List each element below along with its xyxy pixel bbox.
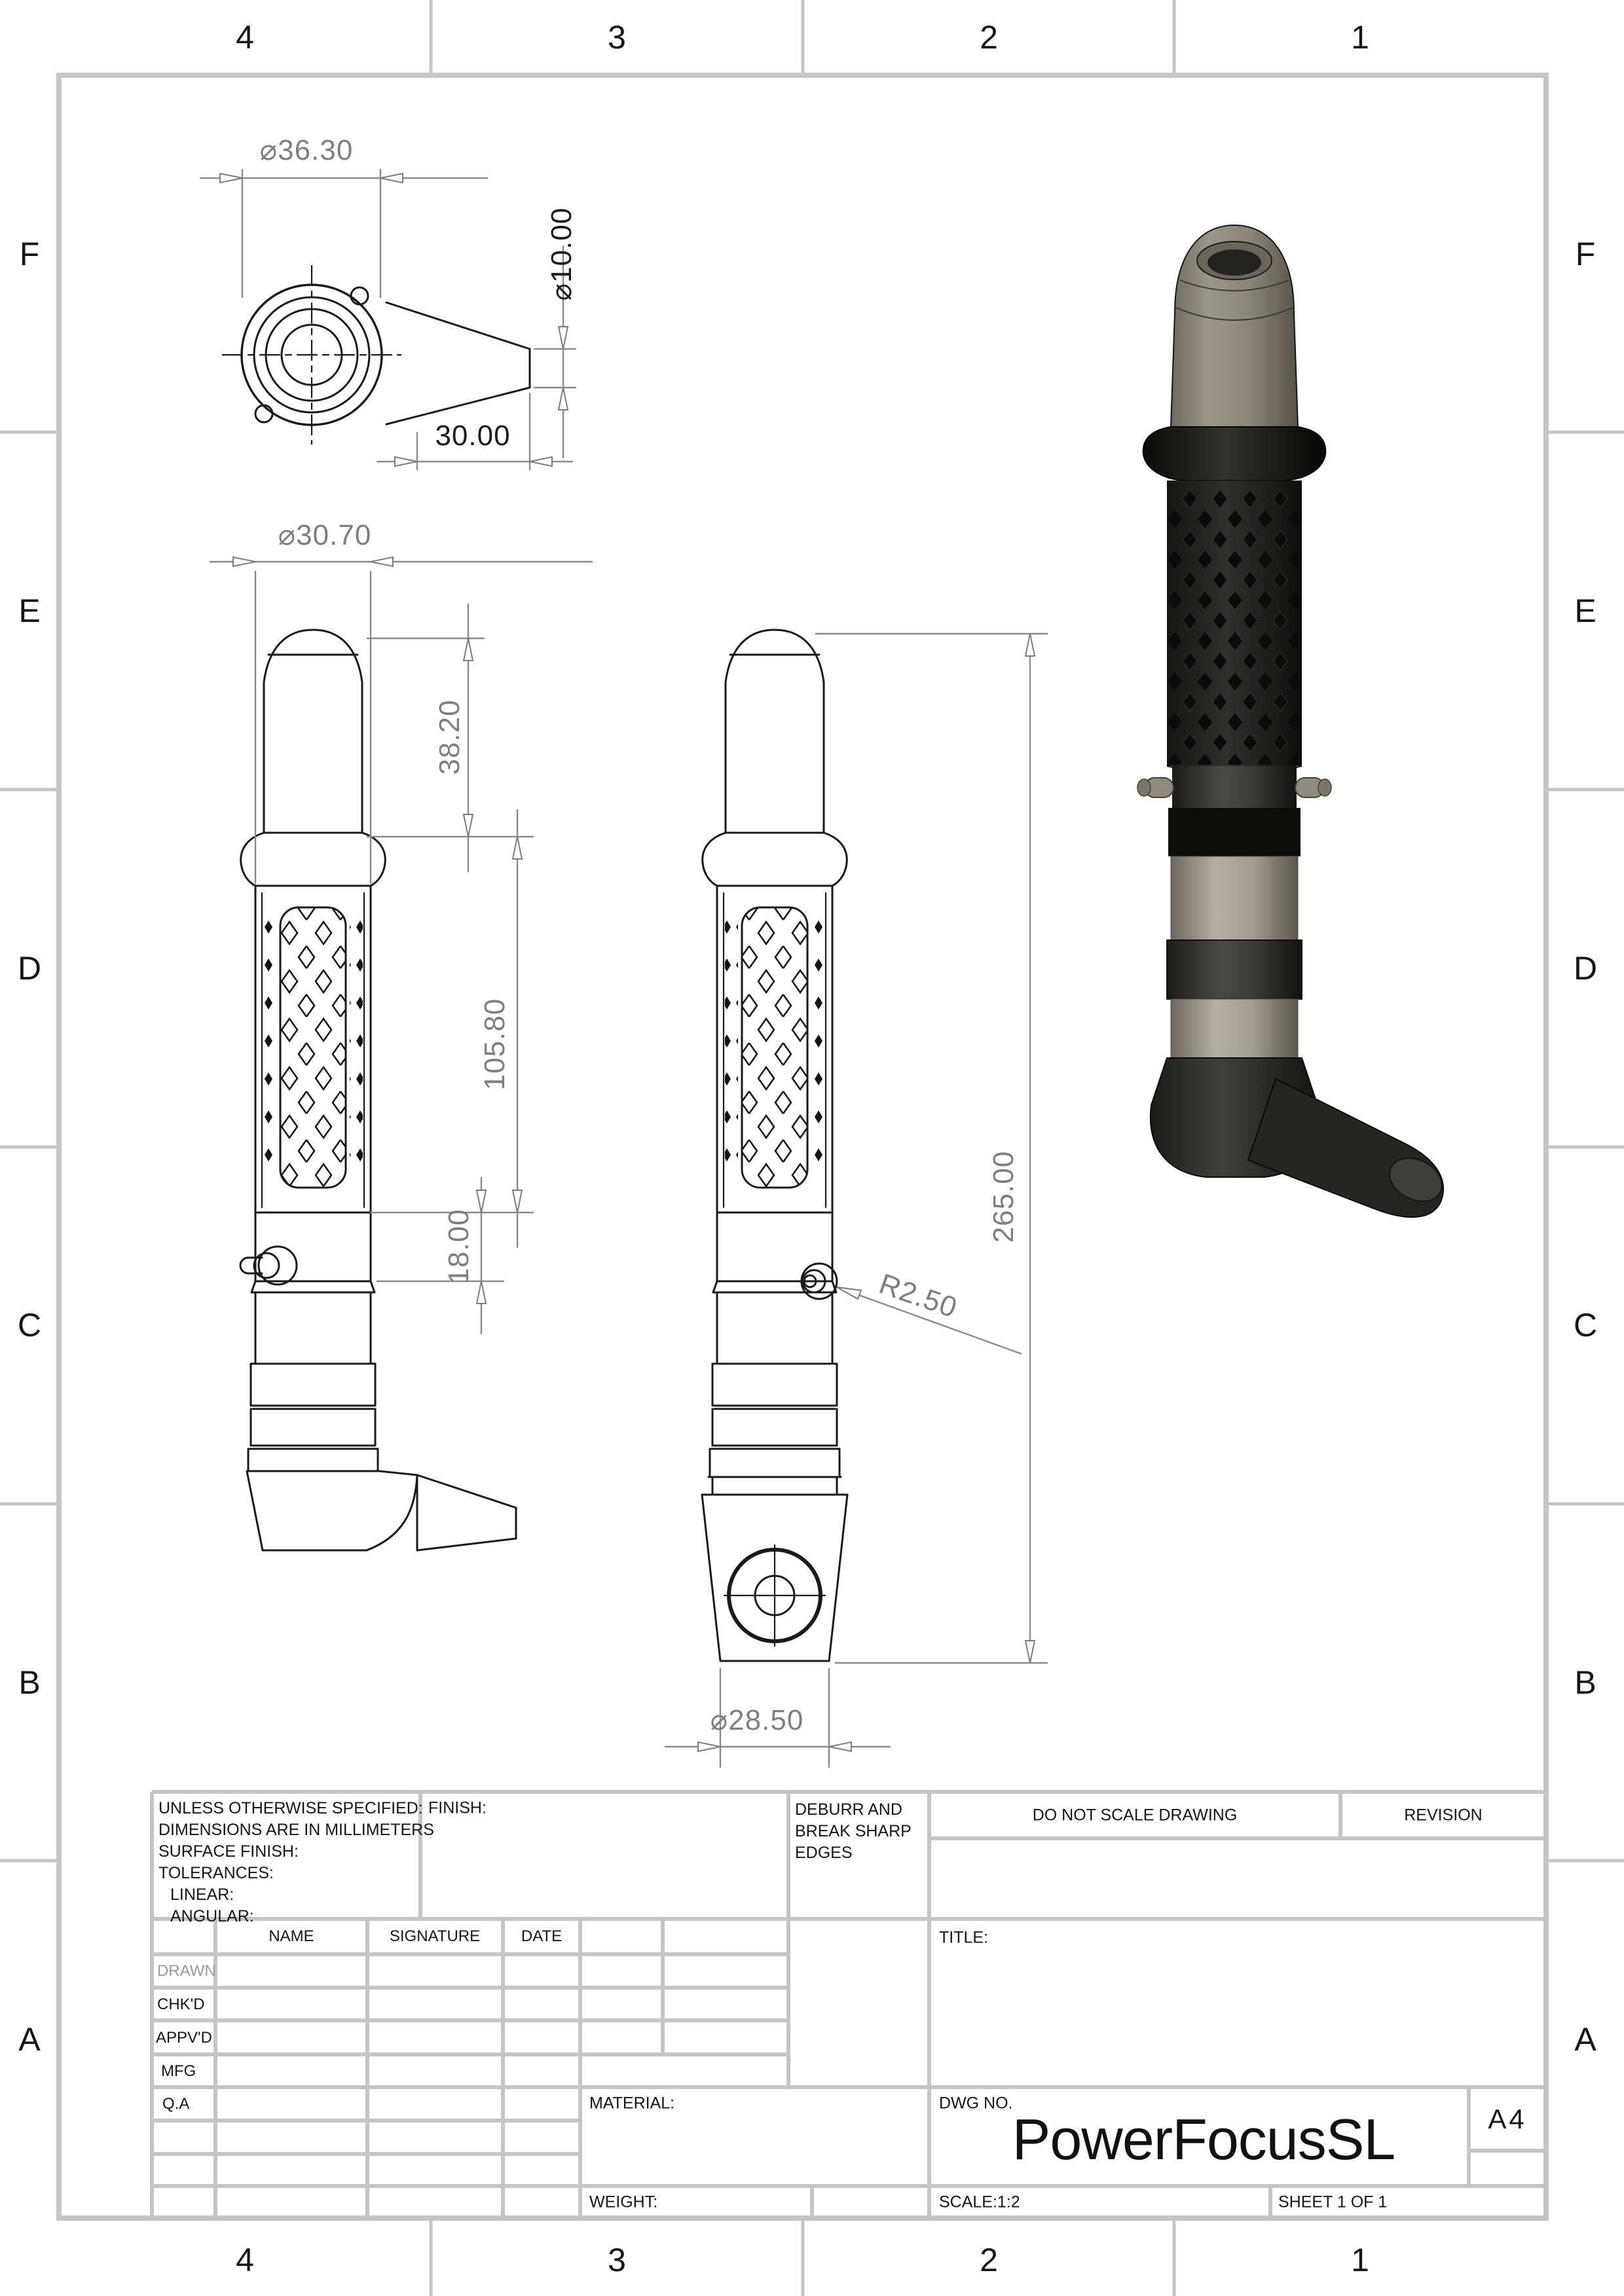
- zone-row-right-f: F: [1576, 238, 1596, 270]
- zone-col-top-1: 1: [1351, 21, 1369, 54]
- front-view-lines: [240, 630, 516, 1550]
- deburr-note: DEBURR AND BREAK SHARP EDGES: [795, 1799, 912, 1864]
- row-label-qa: Q.A: [162, 2096, 189, 2112]
- zone-row-left-b: B: [18, 1666, 40, 1699]
- dim-flange-diameter: ⌀36.30: [260, 136, 354, 165]
- weight-label: WEIGHT:: [589, 2195, 657, 2211]
- material-label: MATERIAL:: [589, 2096, 674, 2112]
- dim-grip-length: 105.80: [481, 998, 509, 1091]
- col-header-date: DATE: [521, 1929, 562, 1944]
- paper-size-label: A4: [1488, 2105, 1526, 2133]
- drawing-sheet: 4 3 2 1 4 3 2 1 F E D C B A F E D C B A …: [0, 0, 1624, 2296]
- zone-row-left-c: C: [18, 1309, 41, 1341]
- zone-row-left-d: D: [18, 952, 41, 985]
- side-view-lines: [702, 630, 847, 1661]
- zone-row-right-d: D: [1574, 952, 1597, 985]
- tolerance-note-line: DIMENSIONS ARE IN MILLIMETERS: [158, 1819, 434, 1841]
- row-label-chkd: CHK'D: [157, 1997, 205, 2013]
- revision-label: REVISION: [1404, 1808, 1482, 1824]
- dim-overall-length: 265.00: [989, 1151, 1018, 1243]
- top-view-lines: [223, 266, 530, 444]
- zone-row-left-e: E: [18, 594, 40, 627]
- zone-col-top-4: 4: [236, 21, 254, 54]
- row-label-drawn: DRAWN: [157, 1963, 216, 1979]
- zone-row-right-b: B: [1574, 1666, 1596, 1699]
- dim-grip-diameter: ⌀30.70: [278, 521, 372, 550]
- zone-col-bottom-1: 1: [1351, 2244, 1369, 2276]
- tolerance-note-line: TOLERANCES:: [158, 1863, 434, 1884]
- tolerance-note-line: ANGULAR:: [158, 1906, 434, 1927]
- tolerance-note-line: LINEAR:: [158, 1884, 434, 1906]
- zone-row-right-e: E: [1574, 594, 1596, 627]
- col-header-signature: SIGNATURE: [390, 1929, 480, 1944]
- zone-row-left-a: A: [18, 2023, 40, 2056]
- zone-row-left-f: F: [20, 238, 40, 270]
- isometric-view: [1137, 225, 1449, 1217]
- zone-col-top-3: 3: [608, 21, 626, 54]
- zone-col-bottom-2: 2: [980, 2244, 998, 2276]
- zone-col-top-2: 2: [980, 21, 998, 54]
- row-label-mfg: MFG: [161, 2064, 196, 2079]
- dim-cap-length: 38.20: [435, 699, 464, 774]
- dim-button-section: 18.00: [445, 1209, 473, 1284]
- zone-row-right-a: A: [1574, 2023, 1596, 2056]
- dim-nozzle-bore: ⌀10.00: [547, 208, 576, 301]
- sheet-label: SHEET 1 OF 1: [1278, 2195, 1387, 2211]
- dwg-no-label: DWG NO.: [939, 2096, 1013, 2112]
- zone-col-bottom-4: 4: [236, 2244, 254, 2276]
- dwg-no-value: PowerFocusSL: [1012, 2111, 1395, 2168]
- title-label: TITLE:: [939, 1930, 988, 1946]
- scale-label: SCALE:1:2: [939, 2195, 1020, 2211]
- do-not-scale-label: DO NOT SCALE DRAWING: [1033, 1808, 1238, 1824]
- col-header-name: NAME: [268, 1929, 314, 1944]
- row-label-appvd: APPV'D: [156, 2030, 212, 2046]
- dim-base-diameter: ⌀28.50: [710, 1706, 804, 1735]
- tolerance-note-line: UNLESS OTHERWISE SPECIFIED:: [158, 1798, 434, 1819]
- dim-nozzle-length: 30.00: [435, 422, 510, 450]
- zone-col-bottom-3: 3: [608, 2244, 626, 2276]
- tolerance-note: UNLESS OTHERWISE SPECIFIED: DIMENSIONS A…: [158, 1798, 434, 1927]
- tolerance-note-line: SURFACE FINISH:: [158, 1841, 434, 1863]
- drawing-canvas: [0, 0, 1624, 2296]
- zone-row-right-c: C: [1574, 1309, 1597, 1341]
- finish-label: FINISH:: [428, 1800, 487, 1817]
